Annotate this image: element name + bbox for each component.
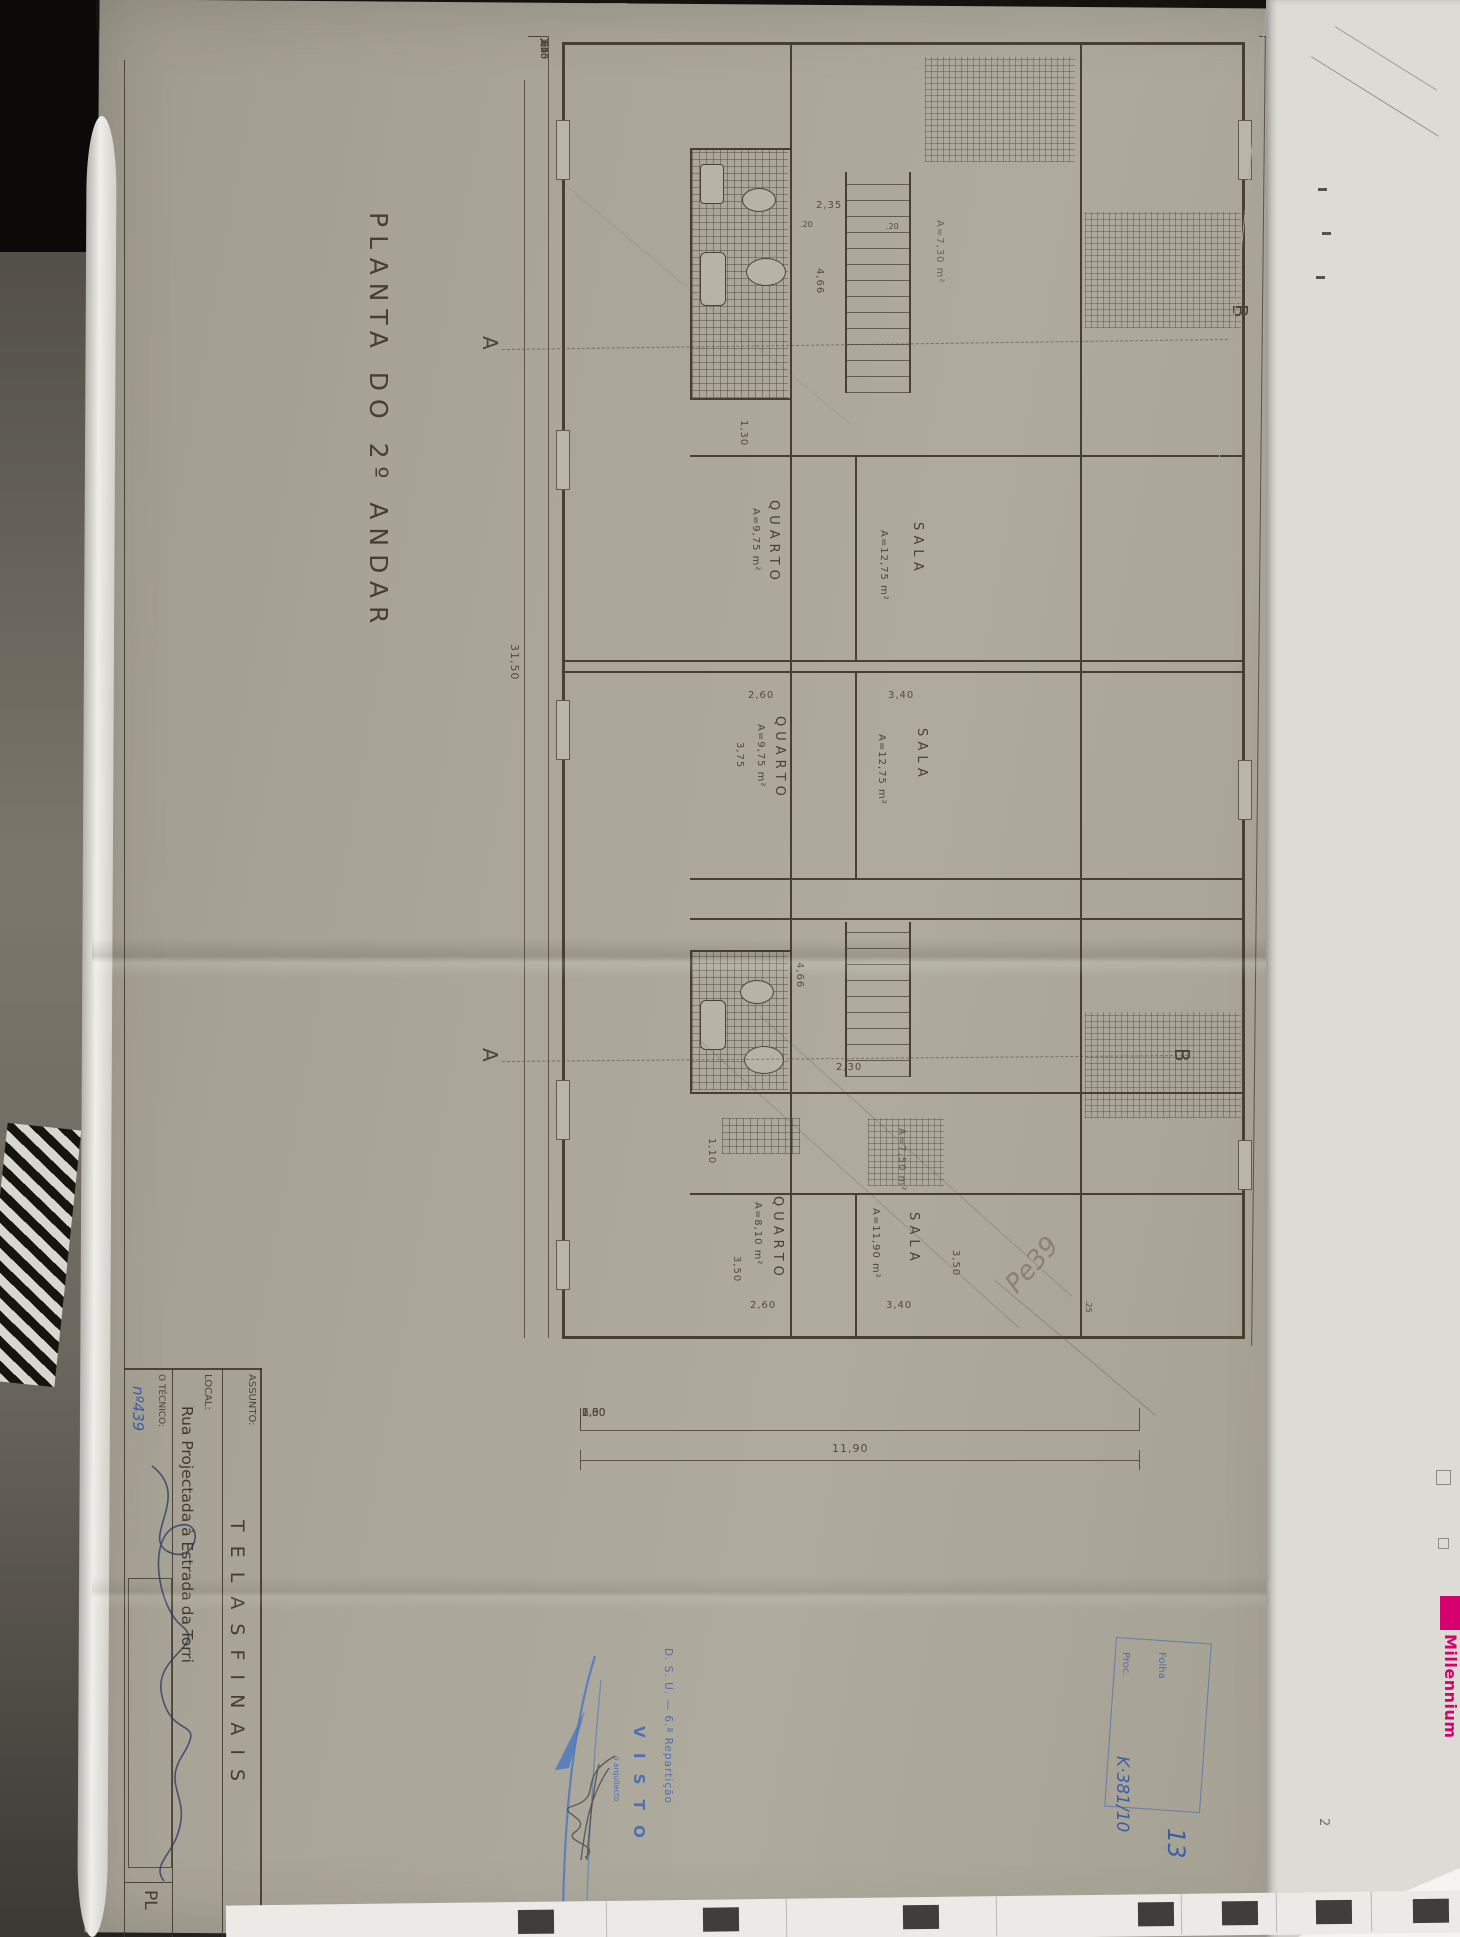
dim-chain-left: 1,40,55,65,55,803,25,80,65,80,951,403,55… xyxy=(528,36,548,1338)
dim-chain-line-left xyxy=(548,36,549,1338)
bidet-fixture xyxy=(746,258,786,286)
wall xyxy=(562,671,1245,673)
dark-corner xyxy=(0,0,98,252)
paper-fold xyxy=(92,938,1304,978)
visto-signature xyxy=(545,1748,625,1868)
dim-u3-quarto-w: 2,60 xyxy=(750,1300,776,1311)
dark-square xyxy=(1138,1902,1174,1926)
checkbox-icon xyxy=(1438,1538,1449,1549)
dim-total-bottom: 11,90 xyxy=(832,1442,869,1455)
drawing-title: PLANTA DO 2º ANDAR xyxy=(364,212,393,631)
dim-corridor-len: 4,66 xyxy=(814,268,825,294)
room-label: SALA xyxy=(914,728,929,782)
dim-total-left: 31,50 xyxy=(508,644,521,681)
section-marker-a2: A xyxy=(478,1048,502,1062)
bidet-fixture xyxy=(744,1046,784,1074)
folha-label: Folha xyxy=(1156,1652,1167,1679)
visto-word: V I S T O xyxy=(630,1726,648,1843)
dim-tick-25: .25 xyxy=(1084,1300,1093,1313)
stairs xyxy=(845,172,911,393)
tick-line xyxy=(1371,1892,1372,1932)
wall xyxy=(1080,42,1082,1336)
wc-fixture xyxy=(740,980,774,1004)
tecnico-label: O TÉCNICO: xyxy=(156,1374,166,1427)
dim-corridor-w: 2,35 xyxy=(816,200,842,211)
tub-fixture xyxy=(700,1000,726,1050)
window xyxy=(556,1240,570,1290)
wall xyxy=(562,42,1245,45)
dim-u2-sala-w: 3,40 xyxy=(888,690,914,701)
brand-wordmark: Millennium xyxy=(1438,1634,1460,1774)
wall xyxy=(690,878,1245,880)
room-area: A=9,75 m² xyxy=(750,508,761,571)
tecnico-signature xyxy=(122,1456,222,1886)
wall xyxy=(562,1336,1245,1339)
room-label: QUARTO xyxy=(766,500,781,585)
balcony-area: A=7,50 m² xyxy=(896,1128,907,1191)
tick-line xyxy=(1276,1893,1277,1933)
dim-u2-quarto-d: 3,75 xyxy=(734,742,745,768)
tecnico-number-handwritten: nº439 xyxy=(129,1386,147,1431)
dim-total-line-bottom xyxy=(580,1460,1140,1461)
brand-logo-block xyxy=(1440,1596,1460,1630)
titleblock-divider-1 xyxy=(222,1368,223,1937)
room-label: QUARTO xyxy=(772,716,787,801)
dim-total-line-left xyxy=(524,80,525,1338)
balcony-tile xyxy=(925,57,1075,162)
room-area: A=11,90 m² xyxy=(870,1208,881,1279)
paper-fold xyxy=(92,1576,1304,1610)
dim-1-30: 1,30 xyxy=(738,420,749,446)
small-mark xyxy=(1318,188,1327,191)
dim-u2-quarto-w: 2,60 xyxy=(748,690,774,701)
door-opening xyxy=(790,480,792,520)
room-area: A=12,75 m² xyxy=(878,530,889,601)
wall xyxy=(690,455,1245,457)
wall xyxy=(690,1193,1245,1195)
proc-label: Proc. xyxy=(1120,1652,1131,1677)
photo-of-floor-plan: ASSUNTO: T E L A S F I N A I S LOCAL: Ru… xyxy=(0,0,1460,1937)
visto-department: D. S. U. — 6.ª Repartição xyxy=(662,1648,674,1804)
wall xyxy=(562,42,565,1339)
proc-value-handwritten: K·381/10 xyxy=(1112,1756,1132,1832)
wc-fixture xyxy=(742,188,776,212)
dark-square xyxy=(1316,1900,1352,1924)
dim-hall-b: 2,30 xyxy=(836,1062,862,1073)
dim-chain-line-bottom xyxy=(580,1430,1140,1431)
window xyxy=(1238,1140,1252,1190)
window xyxy=(1238,760,1252,820)
dim-u3-sala-d: 3,50 xyxy=(950,1250,961,1276)
tick-line xyxy=(606,1901,607,1937)
titleblock-right-line xyxy=(260,1368,262,1937)
room-label: QUARTO xyxy=(770,1196,785,1281)
dim-end-tick xyxy=(580,1450,581,1470)
wall xyxy=(855,673,857,878)
room-area: A=9,75 m² xyxy=(755,724,766,787)
background-paper-right xyxy=(1266,0,1460,1937)
small-mark xyxy=(1322,232,1331,235)
dark-square xyxy=(1222,1901,1258,1925)
dark-square xyxy=(1413,1899,1449,1923)
stray-digit: 2 xyxy=(1316,1818,1331,1826)
section-marker-a1: A xyxy=(478,336,502,350)
dim-u3-sala-w: 3,40 xyxy=(886,1300,912,1311)
wall xyxy=(855,1193,857,1336)
section-marker-b1: B xyxy=(1228,304,1252,318)
room-label: SALA xyxy=(910,522,925,576)
dim-end-tick xyxy=(1139,1450,1140,1470)
dim-u3-quarto-d: 3,50 xyxy=(731,1256,742,1282)
dim-value: 1,00 xyxy=(580,1408,605,1430)
tick-line xyxy=(1181,1894,1182,1934)
room-area: A=12,75 m² xyxy=(876,734,887,805)
window xyxy=(556,1080,570,1140)
tick-line xyxy=(996,1896,997,1936)
kitchen-tile xyxy=(1085,212,1241,328)
assunto-value: T E L A S F I N A I S xyxy=(226,1520,248,1785)
dim-1-10: 1,10 xyxy=(706,1138,717,1164)
kitchen-tile xyxy=(1085,1012,1241,1118)
dark-square xyxy=(518,1910,554,1934)
wall-bath xyxy=(690,398,790,400)
wall xyxy=(855,455,857,660)
dark-square xyxy=(903,1905,939,1929)
form-square-icon xyxy=(1436,1470,1451,1485)
door-opening xyxy=(790,1210,792,1250)
section-marker-b2: B xyxy=(1170,1048,1194,1062)
dim-value: 2,10 xyxy=(528,36,548,59)
dark-square xyxy=(703,1907,739,1931)
basin-fixture xyxy=(700,164,724,204)
assunto-label: ASSUNTO: xyxy=(246,1374,257,1426)
dim-end-tick xyxy=(1139,1408,1140,1430)
balcony-area: A=7,30 m² xyxy=(934,220,945,283)
folha-value-handwritten: 13 xyxy=(1162,1828,1190,1859)
local-label: LOCAL: xyxy=(202,1374,213,1410)
sheet-code: PL xyxy=(140,1890,160,1910)
wall xyxy=(690,918,1245,920)
wall xyxy=(562,660,1245,662)
dim-chain-bottom: 2,306,602,001,00 xyxy=(580,1408,1140,1430)
window xyxy=(556,120,570,180)
titleblock-top-line xyxy=(124,1368,262,1370)
dim-tick: .20 xyxy=(800,220,813,229)
small-mark xyxy=(1316,276,1325,279)
tub-fixture xyxy=(700,252,726,306)
bathroom-hatch xyxy=(722,1118,800,1154)
tick-line xyxy=(786,1899,787,1937)
window xyxy=(556,700,570,760)
window xyxy=(556,430,570,490)
dim-tick: .20 xyxy=(886,222,899,231)
door-opening xyxy=(790,700,792,740)
room-area: A=8,10 m² xyxy=(752,1202,763,1265)
